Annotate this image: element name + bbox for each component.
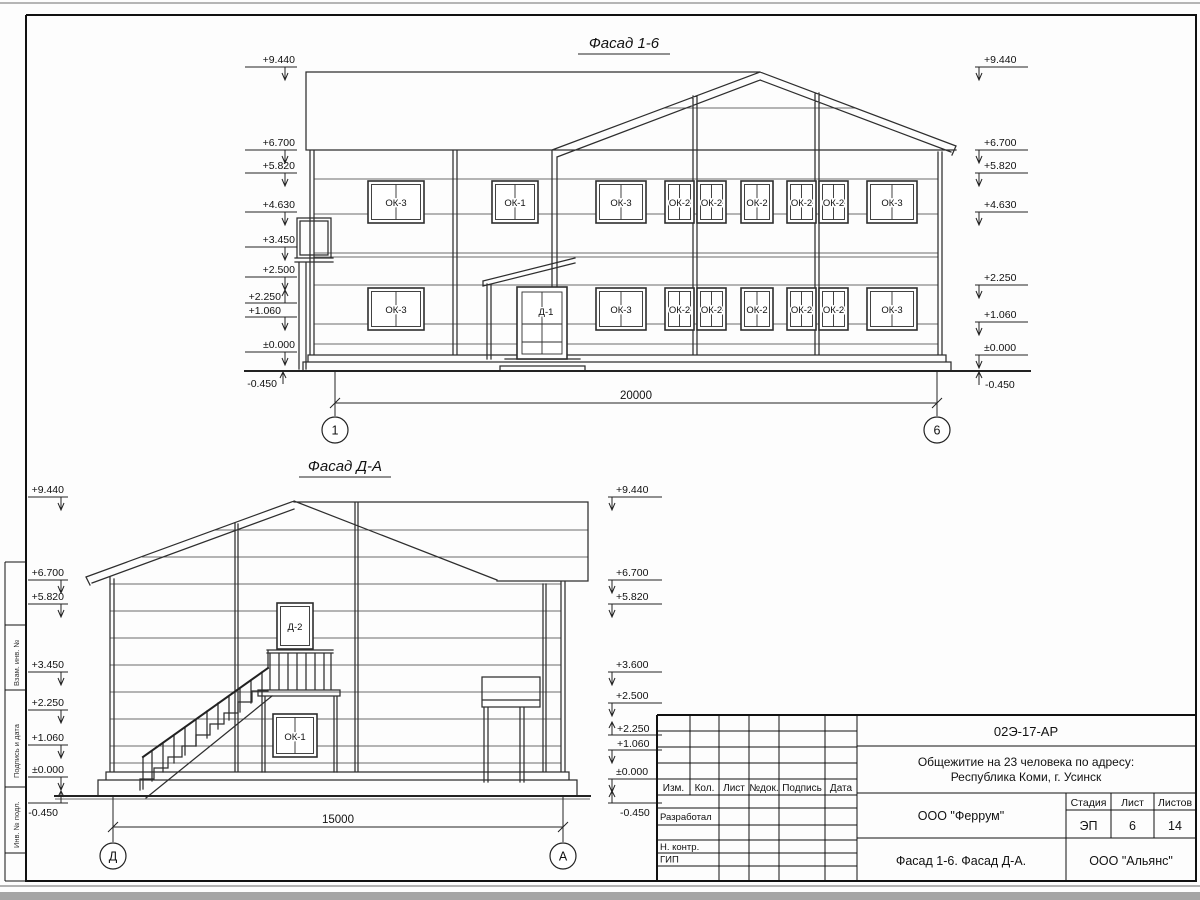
window-label: ОК-3 bbox=[881, 305, 902, 316]
svg-text:+9.440: +9.440 bbox=[32, 484, 65, 496]
svg-text:-0.450: -0.450 bbox=[28, 807, 58, 819]
elevation-mark: +4.630 bbox=[975, 199, 1028, 225]
dimension: 20000 bbox=[330, 371, 942, 416]
tb-header-cell: Кол. bbox=[695, 783, 715, 794]
window: ОК-3 bbox=[867, 181, 917, 223]
svg-text:А: А bbox=[559, 850, 568, 864]
window-label: ОК-3 bbox=[385, 305, 406, 316]
window: ОК-2 bbox=[741, 181, 773, 223]
window: ОК-2 bbox=[741, 288, 773, 330]
stage-label: Стадия bbox=[1071, 797, 1107, 809]
upper-door: Д-2 bbox=[277, 603, 313, 649]
window: ОК-2 bbox=[665, 288, 694, 330]
window-label: ОК-2 bbox=[823, 198, 844, 209]
window-label: ОК-2 bbox=[669, 198, 690, 209]
door-label: Д-1 bbox=[539, 307, 554, 318]
svg-text:+3.450: +3.450 bbox=[263, 234, 296, 246]
svg-text:+5.820: +5.820 bbox=[32, 591, 65, 603]
svg-text:+3.600: +3.600 bbox=[616, 659, 649, 671]
page-bottom-band bbox=[0, 892, 1200, 900]
doc-number: 02Э-17-АР bbox=[994, 724, 1058, 739]
svg-text:Д: Д bbox=[109, 850, 118, 864]
tb-role: Разработал bbox=[660, 812, 712, 823]
facade-d-a: Фасад Д-А Д-2 ОК-1 +9.440 + bbox=[28, 458, 662, 869]
dimension-value: 20000 bbox=[620, 390, 652, 402]
sheets-label: Листов bbox=[1158, 797, 1193, 809]
tb-header-cell: №док. bbox=[749, 783, 778, 794]
title-block: 02Э-17-АР Общежитие на 23 человека по ад… bbox=[657, 715, 1196, 881]
svg-text:+1.060: +1.060 bbox=[249, 305, 282, 317]
tb-header-cell: Изм. bbox=[663, 783, 684, 794]
sheets-value: 14 bbox=[1168, 819, 1182, 833]
window-label: ОК-2 bbox=[746, 305, 767, 316]
elevation-mark: ±0.000 bbox=[975, 342, 1028, 368]
customer-org: ООО "Альянс" bbox=[1089, 854, 1173, 868]
drawing-canvas: Взам. инв. № Подпись и дата Инв. № подл.… bbox=[0, 0, 1200, 900]
drawing-frame: Взам. инв. № Подпись и дата Инв. № подл. bbox=[5, 15, 1196, 881]
elevation-mark: -0.450 bbox=[608, 791, 662, 819]
window-label: ОК-2 bbox=[791, 198, 812, 209]
elevation-mark: +9.440 bbox=[245, 54, 297, 80]
window-label: ОК-2 bbox=[791, 305, 812, 316]
svg-text:+2.500: +2.500 bbox=[263, 264, 296, 276]
elevation-mark: +6.700 bbox=[28, 567, 68, 593]
tb-header-cell: Дата bbox=[830, 783, 853, 794]
stage-value: ЭП bbox=[1080, 819, 1098, 833]
window: ОК-3 bbox=[368, 288, 424, 330]
window-label: ОК-3 bbox=[610, 305, 631, 316]
svg-text:1: 1 bbox=[332, 424, 339, 438]
svg-text:+6.700: +6.700 bbox=[32, 567, 65, 579]
elevation-mark: ±0.000 bbox=[28, 764, 68, 790]
svg-text:+9.440: +9.440 bbox=[616, 484, 649, 496]
window-label: ОК-1 bbox=[284, 732, 305, 743]
svg-text:±0.000: ±0.000 bbox=[616, 766, 648, 778]
elevation-mark: ±0.000 bbox=[245, 339, 297, 365]
window: ОК-1 bbox=[492, 181, 538, 223]
elevation-mark: -0.450 bbox=[976, 372, 1015, 391]
sheet-title: Фасад 1-6. Фасад Д-А. bbox=[896, 854, 1026, 868]
elevation-mark: +4.630 bbox=[245, 199, 297, 225]
window: ОК-3 bbox=[596, 288, 646, 330]
elevation-mark: +5.820 bbox=[28, 591, 68, 617]
frame-stamp-label: Взам. инв. № bbox=[12, 640, 21, 686]
window-label: ОК-2 bbox=[746, 198, 767, 209]
svg-text:+5.820: +5.820 bbox=[616, 591, 649, 603]
svg-text:+1.060: +1.060 bbox=[617, 738, 650, 750]
facade-1-6: Фасад 1-6 ОК-3 ОК-1 ОК-3 ОК-2 ОК-2 ОК-2 … bbox=[245, 35, 1030, 443]
tb-role: ГИП bbox=[660, 855, 679, 866]
svg-text:+4.630: +4.630 bbox=[263, 199, 296, 211]
axis-bubble: 6 bbox=[924, 417, 950, 443]
window-label: ОК-2 bbox=[823, 305, 844, 316]
svg-text:+4.630: +4.630 bbox=[984, 199, 1017, 211]
elevation-mark: +1.060 bbox=[245, 305, 297, 330]
dimension-value: 15000 bbox=[322, 814, 354, 826]
svg-text:+9.440: +9.440 bbox=[984, 54, 1017, 66]
svg-text:±0.000: ±0.000 bbox=[32, 764, 64, 776]
elevation-mark: -0.450 bbox=[247, 372, 286, 390]
svg-text:-0.450: -0.450 bbox=[247, 378, 277, 390]
svg-text:+2.250: +2.250 bbox=[984, 272, 1017, 284]
axis-bubble: Д bbox=[100, 843, 126, 869]
elevation-mark: +2.250 bbox=[608, 722, 662, 735]
window: ОК-2 bbox=[819, 288, 848, 330]
elevation-mark: +2.250 bbox=[975, 272, 1028, 298]
tb-header-cell: Подпись bbox=[782, 783, 822, 794]
window-label: ОК-3 bbox=[610, 198, 631, 209]
elevation-mark: +1.060 bbox=[28, 732, 68, 758]
window-label: ОК-3 bbox=[385, 198, 406, 209]
window: ОК-2 bbox=[787, 288, 816, 330]
axis-bubble: 1 bbox=[322, 417, 348, 443]
elevation-mark: +3.600 bbox=[608, 659, 662, 685]
elevation-mark: +1.060 bbox=[608, 738, 662, 763]
svg-text:+2.250: +2.250 bbox=[249, 291, 282, 303]
elevation-mark: +2.250 bbox=[245, 290, 297, 303]
elevation-mark: +5.820 bbox=[608, 591, 662, 617]
designer-org: ООО "Феррум" bbox=[918, 809, 1004, 823]
frame-stamp-label: Подпись и дата bbox=[12, 723, 21, 778]
window: ОК-3 bbox=[867, 288, 917, 330]
svg-text:±0.000: ±0.000 bbox=[263, 339, 295, 351]
window-label: ОК-2 bbox=[701, 198, 722, 209]
svg-text:+6.700: +6.700 bbox=[616, 567, 649, 579]
elevation-mark: +2.500 bbox=[245, 264, 297, 290]
svg-text:+1.060: +1.060 bbox=[32, 732, 65, 744]
svg-text:-0.450: -0.450 bbox=[620, 807, 650, 819]
window: ОК-1 bbox=[273, 714, 317, 757]
svg-text:+9.440: +9.440 bbox=[263, 54, 296, 66]
dimension: 15000 bbox=[108, 797, 568, 842]
elevation-mark: +2.500 bbox=[608, 690, 662, 716]
elevation-mark: +9.440 bbox=[975, 54, 1028, 80]
axis-bubble: А bbox=[550, 843, 576, 869]
svg-text:+5.820: +5.820 bbox=[263, 160, 296, 172]
window-label: ОК-1 bbox=[504, 198, 525, 209]
view-title: Фасад 1-6 bbox=[589, 35, 660, 52]
window: ОК-3 bbox=[596, 181, 646, 223]
entrance-door: Д-1 bbox=[517, 287, 567, 359]
window: ОК-2 bbox=[819, 181, 848, 223]
svg-text:+2.500: +2.500 bbox=[616, 690, 649, 702]
window: ОК-2 bbox=[787, 181, 816, 223]
svg-text:6: 6 bbox=[934, 424, 941, 438]
svg-text:+2.250: +2.250 bbox=[617, 723, 650, 735]
svg-text:-0.450: -0.450 bbox=[985, 379, 1015, 391]
elevation-mark: +5.820 bbox=[245, 160, 297, 186]
window: ОК-3 bbox=[368, 181, 424, 223]
tb-header-cell: Лист bbox=[723, 783, 745, 794]
project-name-line2: Республика Коми, г. Усинск bbox=[951, 770, 1102, 784]
window-label: ОК-3 bbox=[881, 198, 902, 209]
elevation-mark: +9.440 bbox=[28, 484, 68, 510]
svg-text:+6.700: +6.700 bbox=[984, 137, 1017, 149]
elevation-mark: +9.440 bbox=[608, 484, 662, 510]
svg-text:+6.700: +6.700 bbox=[263, 137, 296, 149]
elevation-mark: +1.060 bbox=[975, 309, 1028, 335]
svg-text:+2.250: +2.250 bbox=[32, 697, 65, 709]
svg-text:+5.820: +5.820 bbox=[984, 160, 1017, 172]
elevation-mark: +3.450 bbox=[28, 659, 68, 685]
frame-stamp-label: Инв. № подл. bbox=[12, 801, 21, 848]
sheet-label: Лист bbox=[1121, 797, 1144, 809]
svg-text:+1.060: +1.060 bbox=[984, 309, 1017, 321]
view-title: Фасад Д-А bbox=[308, 458, 382, 475]
window: ОК-2 bbox=[697, 181, 726, 223]
elevation-mark: +6.700 bbox=[608, 567, 662, 593]
elevation-mark: ±0.000 bbox=[608, 766, 662, 792]
drawing-sheet: Взам. инв. № Подпись и дата Инв. № подл.… bbox=[0, 0, 1200, 900]
svg-text:+3.450: +3.450 bbox=[32, 659, 65, 671]
svg-text:±0.000: ±0.000 bbox=[984, 342, 1016, 354]
sheet-value: 6 bbox=[1129, 819, 1136, 833]
window-label: ОК-2 bbox=[669, 305, 690, 316]
project-name-line1: Общежитие на 23 человека по адресу: bbox=[918, 755, 1134, 769]
tb-role: Н. контр. bbox=[660, 842, 699, 853]
elevation-mark: +2.250 bbox=[28, 697, 68, 723]
elevation-mark: +5.820 bbox=[975, 160, 1028, 186]
door-label: Д-2 bbox=[288, 622, 303, 633]
window: ОК-2 bbox=[697, 288, 726, 330]
elevation-mark: +3.450 bbox=[245, 234, 297, 260]
window: ОК-2 bbox=[665, 181, 694, 223]
window-label: ОК-2 bbox=[701, 305, 722, 316]
